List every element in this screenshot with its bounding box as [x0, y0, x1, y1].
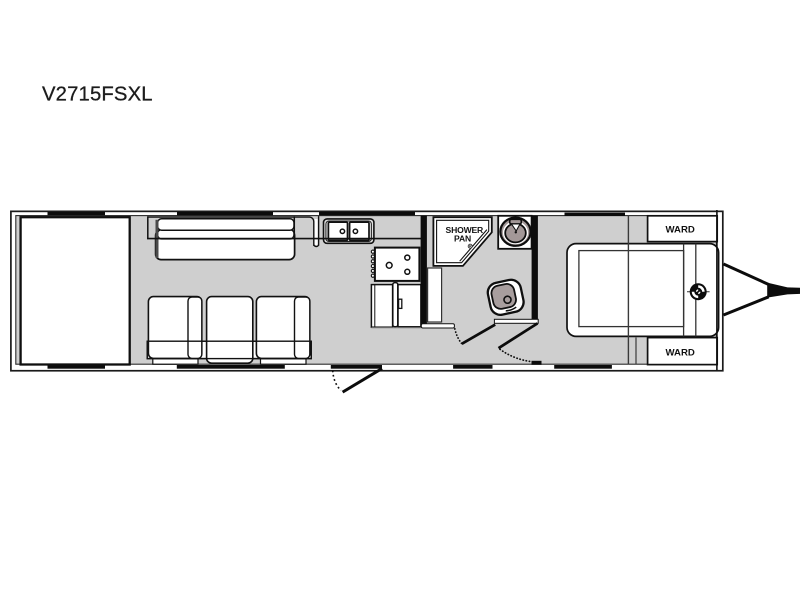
svg-text:WARD: WARD	[666, 224, 695, 235]
svg-text:PAN: PAN	[454, 234, 471, 244]
svg-text:V2715FSXL: V2715FSXL	[42, 83, 153, 105]
svg-text:WARD: WARD	[666, 347, 695, 358]
svg-text:R: R	[469, 245, 472, 249]
